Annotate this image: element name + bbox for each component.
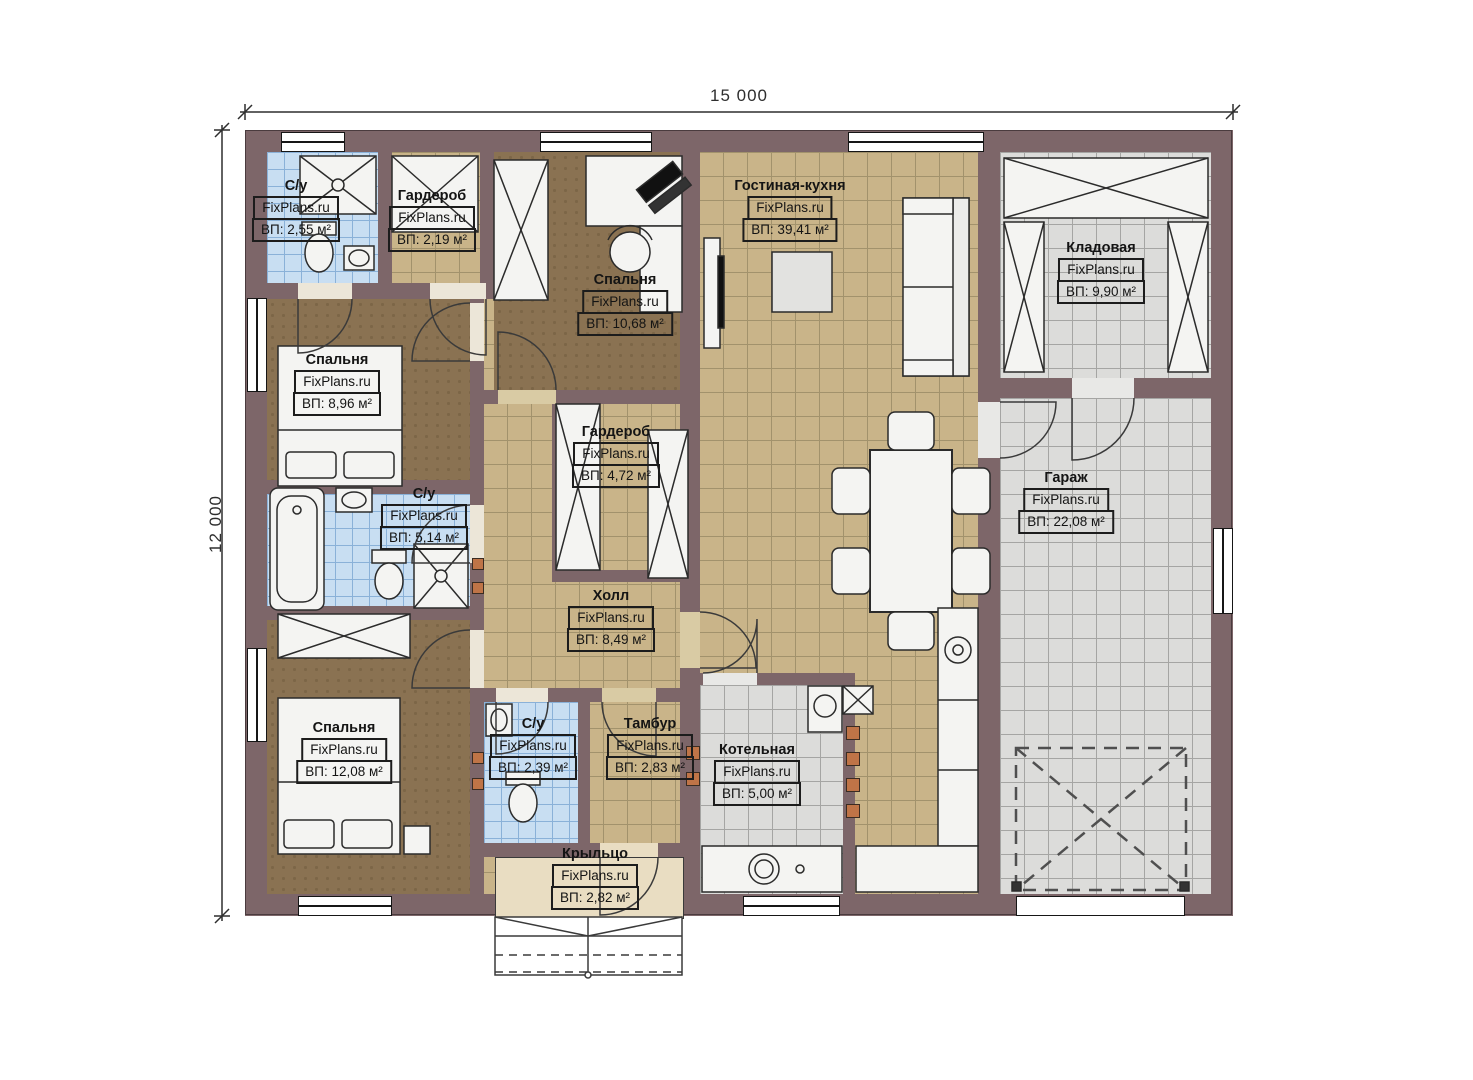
door-opening	[498, 390, 556, 404]
room-name: Гараж	[1044, 470, 1087, 486]
room-name: Тамбур	[624, 716, 677, 732]
door-opening	[496, 688, 548, 702]
room-watermark: FixPlans.ru	[301, 738, 387, 762]
room-area: ВП: 8,49 м²	[567, 628, 655, 652]
room-name: Спальня	[306, 352, 369, 368]
dimension-tick	[1226, 105, 1240, 119]
room-area: ВП: 10,68 м²	[577, 312, 673, 336]
room-label-bathroom-top: С/у FixPlans.ru ВП: 2,55 м²	[252, 178, 340, 242]
window	[247, 648, 267, 742]
window	[281, 132, 345, 152]
room-label-wardrobe-mid: Гардероб FixPlans.ru ВП: 4,72 м²	[572, 424, 660, 488]
door-opening	[1072, 378, 1134, 398]
room-label-living-kitchen: Гостиная-кухня FixPlans.ru ВП: 39,41 м²	[734, 178, 845, 242]
room-name: Гардероб	[398, 188, 467, 204]
room-area: ВП: 5,14 м²	[380, 526, 468, 550]
room-label-hall: Холл FixPlans.ru ВП: 8,49 м²	[567, 588, 655, 652]
floor-plan: 15 000 12 000 С/у FixPlans.ru ВП: 2,55 м…	[0, 0, 1473, 1080]
room-area: ВП: 4,72 м²	[572, 464, 660, 488]
riser-marker	[472, 558, 484, 570]
door-opening	[978, 402, 1000, 458]
room-name: Гардероб	[582, 424, 651, 440]
door-opening	[602, 688, 656, 702]
door-opening	[430, 283, 486, 299]
room-label-boiler: Котельная FixPlans.ru ВП: 5,00 м²	[713, 742, 801, 806]
room-label-bathroom-mid: С/у FixPlans.ru ВП: 5,14 м²	[380, 486, 468, 550]
dimension-tick	[215, 909, 229, 923]
room-area: ВП: 9,90 м²	[1057, 280, 1145, 304]
riser-marker	[846, 778, 860, 792]
dimension-height-label: 12 000	[206, 474, 226, 574]
riser-marker	[846, 804, 860, 818]
riser-marker	[472, 582, 484, 594]
window	[848, 132, 984, 152]
door-opening	[298, 283, 352, 299]
room-name: Спальня	[313, 720, 376, 736]
room-label-vestibule: Тамбур FixPlans.ru ВП: 2,83 м²	[606, 716, 694, 780]
room-label-bedroom-top: Спальня FixPlans.ru ВП: 10,68 м²	[577, 272, 673, 336]
room-name: Спальня	[594, 272, 657, 288]
garage-gate	[1016, 896, 1185, 916]
room-area: ВП: 2,39 м²	[489, 756, 577, 780]
room-label-bedroom-mid: Спальня FixPlans.ru ВП: 8,96 м²	[293, 352, 381, 416]
room-watermark: FixPlans.ru	[747, 196, 833, 220]
room-watermark: FixPlans.ru	[381, 504, 467, 528]
window	[247, 298, 267, 392]
door-opening	[470, 505, 484, 563]
room-area: ВП: 8,96 м²	[293, 392, 381, 416]
riser-marker	[472, 752, 484, 764]
room-watermark: FixPlans.ru	[253, 196, 339, 220]
riser-marker	[472, 778, 484, 790]
room-label-bathroom-bottom: С/у FixPlans.ru ВП: 2,39 м²	[489, 716, 577, 780]
riser-marker	[846, 700, 860, 714]
room-label-bedroom-bottom: Спальня FixPlans.ru ВП: 12,08 м²	[296, 720, 392, 784]
window	[743, 896, 840, 916]
room-name: С/у	[413, 486, 436, 502]
riser-marker	[846, 726, 860, 740]
window	[540, 132, 652, 152]
dimension-width-label: 15 000	[689, 86, 789, 106]
room-area: ВП: 2,82 м²	[551, 886, 639, 910]
door-opening	[703, 673, 757, 685]
door-opening	[680, 612, 700, 668]
room-watermark: FixPlans.ru	[568, 606, 654, 630]
room-watermark: FixPlans.ru	[607, 734, 693, 758]
room-label-wardrobe-top: Гардероб FixPlans.ru ВП: 2,19 м²	[388, 188, 476, 252]
room-watermark: FixPlans.ru	[552, 864, 638, 888]
room-name: Котельная	[719, 742, 795, 758]
room-name: Гостиная-кухня	[734, 178, 845, 194]
riser-marker	[846, 752, 860, 766]
room-watermark: FixPlans.ru	[294, 370, 380, 394]
room-area: ВП: 2,19 м²	[388, 228, 476, 252]
porch-steps	[495, 917, 682, 978]
room-area: ВП: 2,55 м²	[252, 218, 340, 242]
room-name: С/у	[522, 716, 545, 732]
room-watermark: FixPlans.ru	[1058, 258, 1144, 282]
dimension-tick	[238, 105, 252, 119]
room-watermark: FixPlans.ru	[490, 734, 576, 758]
window	[298, 896, 392, 916]
room-area: ВП: 5,00 м²	[713, 782, 801, 806]
room-area: ВП: 22,08 м²	[1018, 510, 1114, 534]
room-watermark: FixPlans.ru	[714, 760, 800, 784]
door-opening	[470, 630, 484, 688]
room-name: Холл	[593, 588, 629, 604]
room-area: ВП: 2,83 м²	[606, 756, 694, 780]
room-label-garage: Гараж FixPlans.ru ВП: 22,08 м²	[1018, 470, 1114, 534]
room-name: С/у	[285, 178, 308, 194]
room-name: Кладовая	[1066, 240, 1135, 256]
dimension-tick	[215, 123, 229, 137]
room-watermark: FixPlans.ru	[389, 206, 475, 230]
room-area: ВП: 12,08 м²	[296, 760, 392, 784]
room-watermark: FixPlans.ru	[1023, 488, 1109, 512]
room-label-storage: Кладовая FixPlans.ru ВП: 9,90 м²	[1057, 240, 1145, 304]
door-opening	[470, 303, 484, 361]
room-watermark: FixPlans.ru	[573, 442, 659, 466]
room-name: Крыльцо	[562, 846, 628, 862]
room-watermark: FixPlans.ru	[582, 290, 668, 314]
window	[1213, 528, 1233, 614]
room-area: ВП: 39,41 м²	[742, 218, 838, 242]
room-label-porch: Крыльцо FixPlans.ru ВП: 2,82 м²	[551, 846, 639, 910]
